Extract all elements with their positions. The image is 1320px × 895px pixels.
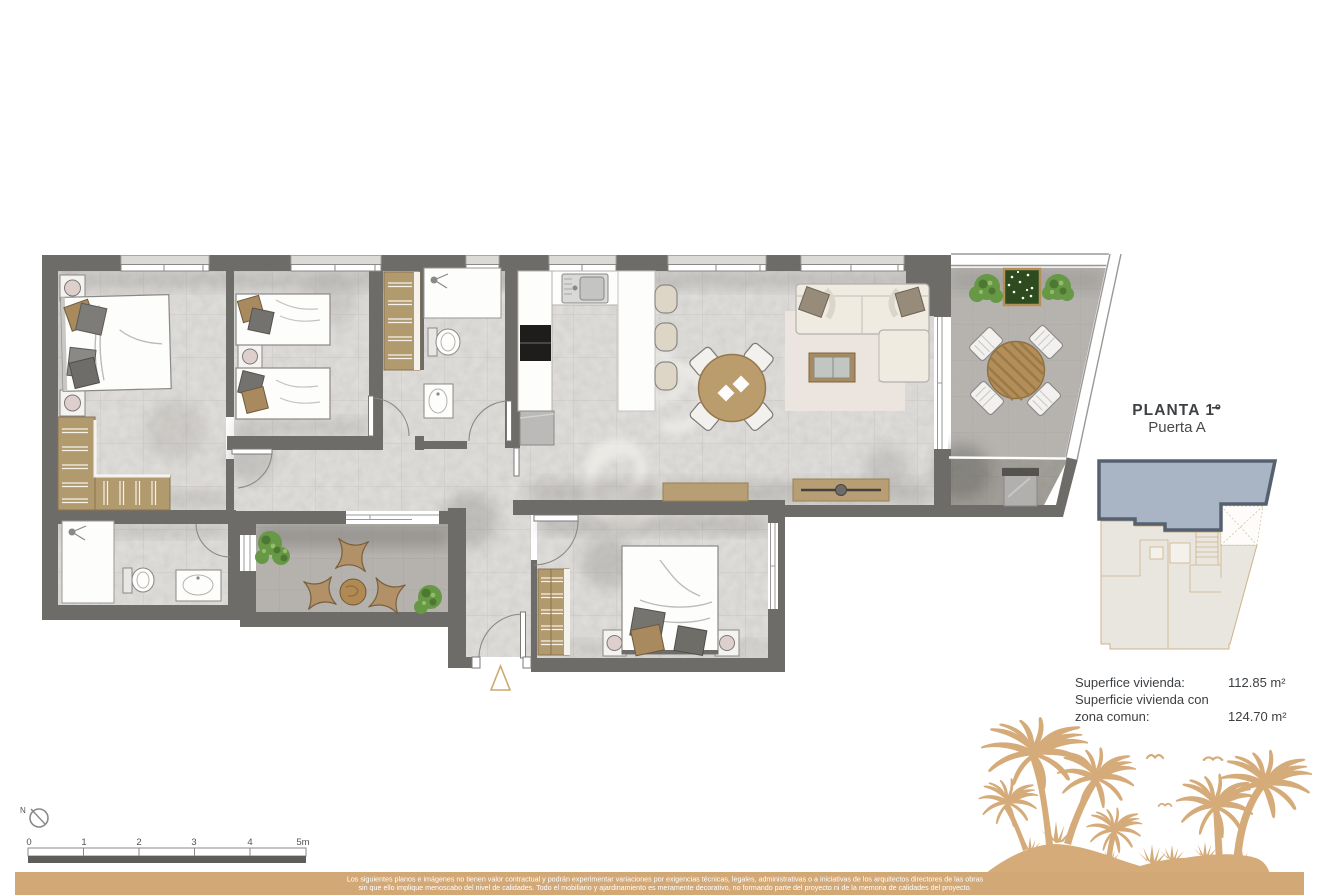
svg-text:4: 4 [247,837,252,848]
svg-text:112.85 m²: 112.85 m² [1228,675,1286,690]
svg-text:Superfice vivienda:: Superfice vivienda: [1075,675,1185,690]
svg-text:Puerta A: Puerta A [1148,419,1206,436]
svg-text:124.70 m²: 124.70 m² [1228,709,1287,724]
svg-text:0: 0 [26,837,31,848]
svg-text:N: N [20,806,26,815]
svg-text:3: 3 [191,837,196,848]
svg-text:1: 1 [81,837,86,848]
svg-text:sin que ello implique menoscab: sin que ello implique menoscabo del nive… [358,884,971,892]
svg-text:PLANTA 1º: PLANTA 1º [1132,402,1222,419]
svg-text:5m: 5m [296,837,309,848]
svg-text:Superficie vivienda con: Superficie vivienda con [1075,692,1209,707]
svg-text:zona comun:: zona comun: [1075,709,1149,724]
svg-text:2: 2 [136,837,141,848]
svg-text:Los siguientes planos e imágen: Los siguientes planos e imágenes no tien… [347,876,984,884]
